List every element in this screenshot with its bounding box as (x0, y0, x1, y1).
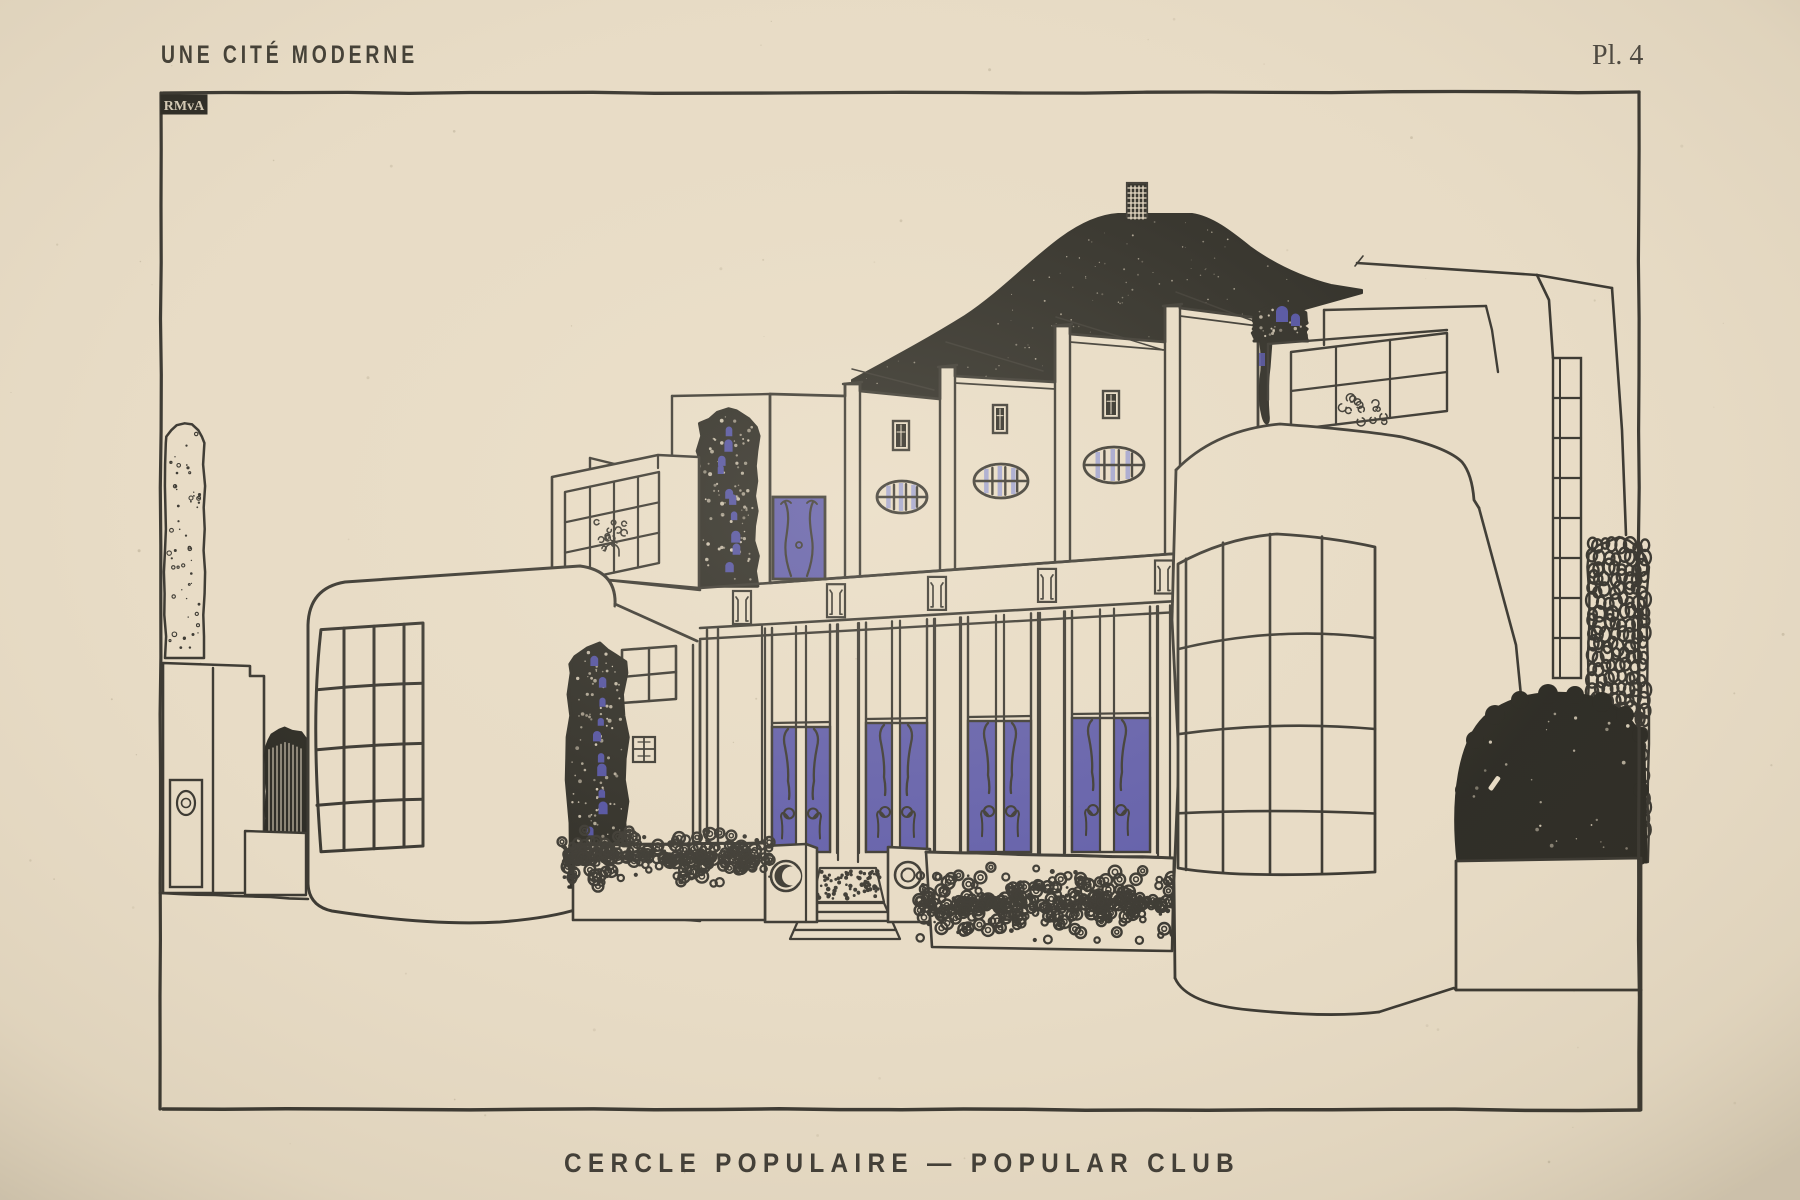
svg-text:CERCLE POPULAIRE — POPULAR CLU: CERCLE POPULAIRE — POPULAR CLUB (564, 1148, 1240, 1178)
svg-text:Pl. 4: Pl. 4 (1592, 40, 1643, 71)
svg-text:UNE CITÉ MODERNE: UNE CITÉ MODERNE (161, 40, 418, 69)
svg-text:RMvA: RMvA (164, 99, 205, 114)
